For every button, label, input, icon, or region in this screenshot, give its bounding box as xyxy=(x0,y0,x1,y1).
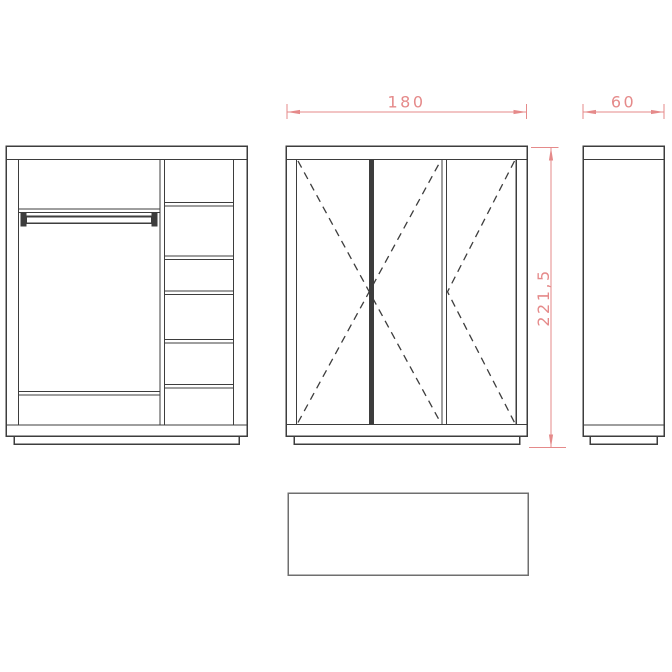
top-view-outline xyxy=(288,493,528,575)
top-view xyxy=(288,493,528,575)
cabinet-outline xyxy=(583,146,664,436)
wardrobe-drawing: 180 60 221,5 xyxy=(0,0,672,672)
height-dimension: 221,5 xyxy=(529,148,566,448)
depth-dimension-label: 60 xyxy=(611,93,636,112)
plinth xyxy=(590,436,657,444)
rod-bracket-right xyxy=(152,214,157,227)
shelf-line xyxy=(165,256,234,259)
hanging-rod xyxy=(26,217,152,224)
shelf-line xyxy=(165,291,234,294)
rod-bracket-left xyxy=(21,214,26,227)
top-shelf xyxy=(19,209,161,212)
arrowhead-right xyxy=(651,110,664,114)
vertical-divider xyxy=(160,160,165,426)
arrowhead-bottom xyxy=(549,435,553,448)
shelf-line xyxy=(165,385,234,388)
depth-dimension: 60 xyxy=(583,93,664,120)
front-interior-view xyxy=(6,146,247,444)
arrowhead-right xyxy=(514,110,527,114)
shelf-line xyxy=(165,203,234,206)
bottom-shelf xyxy=(19,392,161,395)
front-doors-view xyxy=(286,146,527,444)
technical-drawing-canvas: 180 60 221,5 xyxy=(0,0,672,672)
plinth xyxy=(294,436,520,444)
arrowhead-left xyxy=(583,110,596,114)
arrowhead-left xyxy=(287,110,300,114)
plinth xyxy=(14,436,239,444)
side-view xyxy=(583,146,664,444)
height-dimension-label: 221,5 xyxy=(534,268,553,326)
shelf-line xyxy=(165,340,234,343)
cabinet-outline xyxy=(286,146,527,436)
width-dimension-label: 180 xyxy=(387,93,425,112)
width-dimension: 180 xyxy=(287,93,527,120)
door-gap-left xyxy=(370,160,374,425)
arrowhead-top xyxy=(549,148,553,161)
door-gap-right xyxy=(442,160,447,425)
